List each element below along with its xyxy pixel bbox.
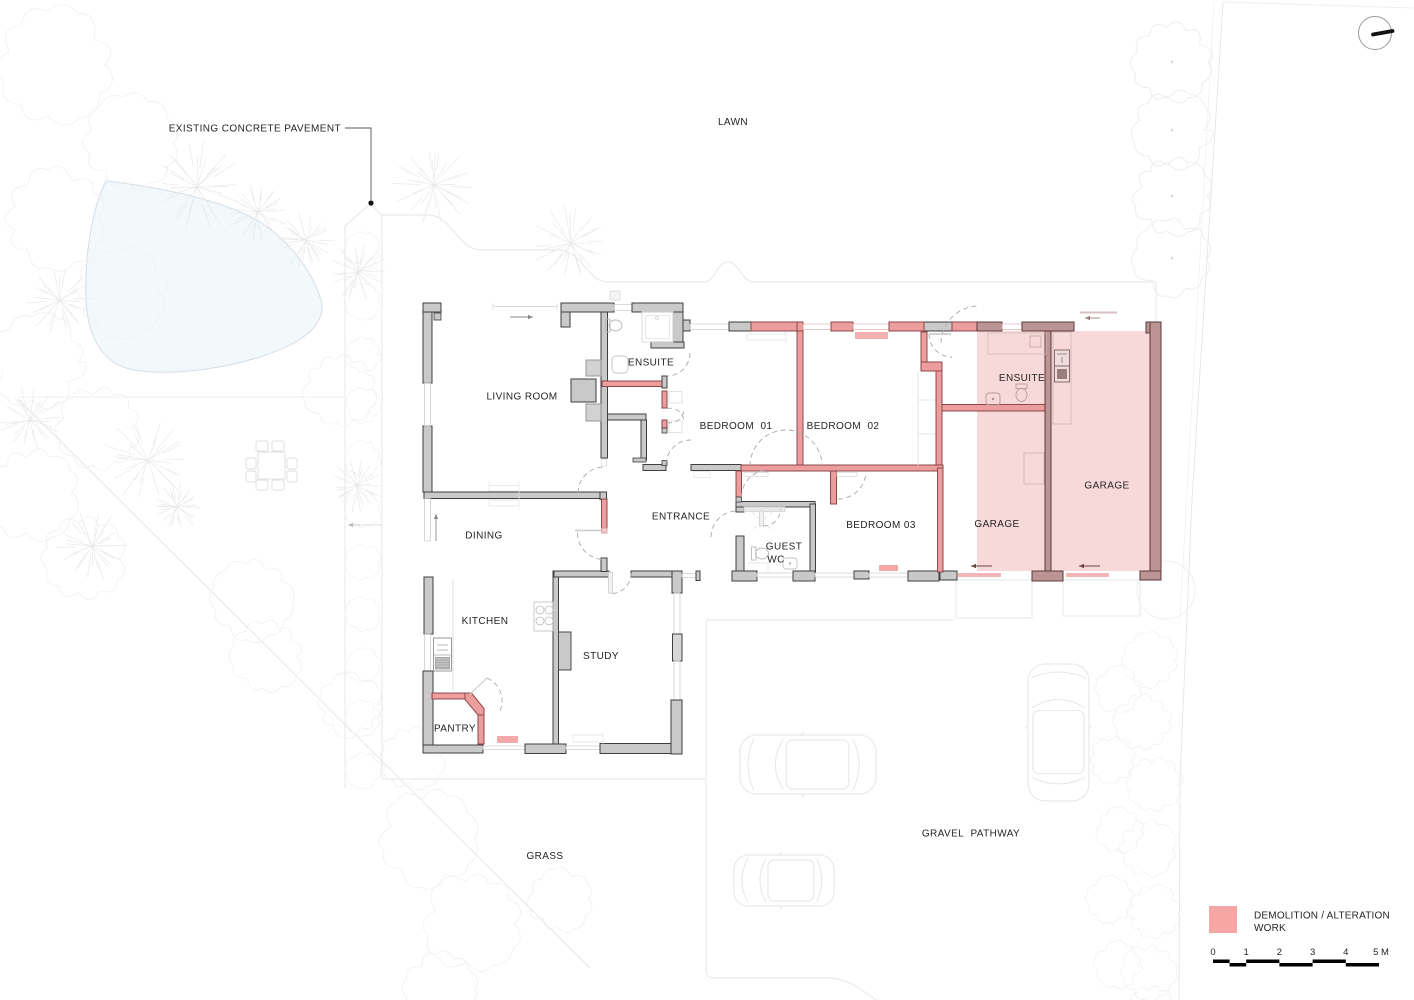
svg-text:GARAGE: GARAGE: [1084, 481, 1129, 492]
svg-text:3: 3: [1310, 947, 1315, 958]
svg-text:LIVING ROOM: LIVING ROOM: [486, 392, 557, 403]
svg-text:5 M: 5 M: [1373, 947, 1389, 958]
svg-text:ENSUITE: ENSUITE: [628, 358, 674, 369]
svg-text:STUDY: STUDY: [583, 651, 619, 662]
svg-text:GRASS: GRASS: [526, 851, 563, 862]
svg-text:DINING: DINING: [465, 531, 502, 542]
svg-text:ENSUITE: ENSUITE: [999, 373, 1045, 384]
svg-text:GARAGE: GARAGE: [974, 519, 1019, 530]
svg-text:ENTRANCE: ENTRANCE: [652, 512, 710, 523]
svg-text:LAWN: LAWN: [718, 117, 748, 128]
svg-text:KITCHEN: KITCHEN: [462, 616, 509, 627]
svg-text:GUEST: GUEST: [766, 542, 802, 553]
svg-text:EXISTING CONCRETE PAVEMENT: EXISTING CONCRETE PAVEMENT: [169, 124, 341, 135]
svg-text:WC: WC: [767, 555, 784, 566]
svg-text:GRAVEL PATHWAY: GRAVEL PATHWAY: [922, 829, 1020, 840]
svg-text:2: 2: [1277, 947, 1282, 958]
svg-text:BEDROOM 01: BEDROOM 01: [700, 421, 773, 432]
svg-text:PANTRY: PANTRY: [434, 724, 476, 735]
svg-text:1: 1: [1244, 947, 1249, 958]
svg-text:BEDROOM 02: BEDROOM 02: [807, 421, 880, 432]
svg-text:WORK: WORK: [1254, 923, 1286, 934]
svg-text:0: 0: [1210, 947, 1215, 958]
svg-text:BEDROOM 03: BEDROOM 03: [846, 520, 916, 531]
svg-text:4: 4: [1343, 947, 1348, 958]
svg-text:DEMOLITION / ALTERATION: DEMOLITION / ALTERATION: [1254, 911, 1390, 922]
